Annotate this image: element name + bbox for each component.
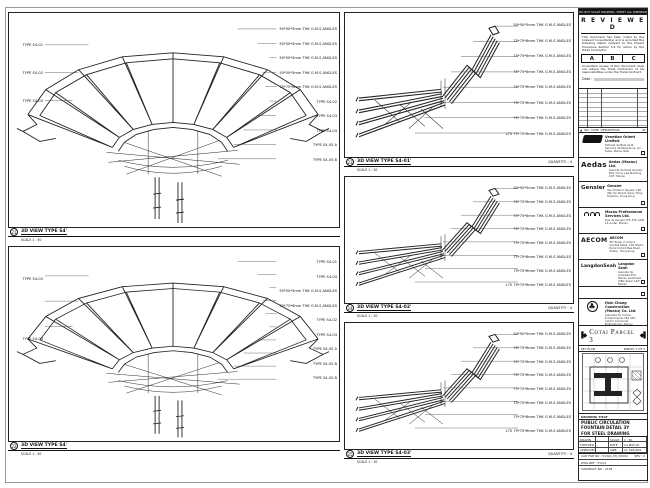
reviewed-paragraph: This document has been noted by the rele… — [581, 34, 645, 54]
company-address: 8/F Tower 2, Grand Central Plaza, 138 Sh… — [609, 241, 645, 253]
revision-triangle-icon: ▲ — [580, 129, 582, 132]
angle-bundle-drawing — [345, 13, 573, 157]
quantity-note: QUANTITY : 4 — [548, 452, 572, 456]
company-address: Two Harbour Square, 180 Wai Yip Street, … — [607, 189, 645, 198]
company-address: Rua de Xangai 175, Edf. ACM 14 Andar, Ma… — [605, 219, 645, 225]
company-name: Macau Professional Services Ltd. — [605, 210, 645, 218]
revision-table: ▲ NO. DATE DESCRIPTION BY — [579, 89, 647, 133]
date-label: Date : — [582, 77, 592, 81]
company-aecom: AECOM AECOM 8/F Tower 2, Grand Central P… — [579, 234, 647, 260]
quantity-note: QUANTITY : 4 — [548, 160, 572, 164]
company-name: Aedas (Macau) Ltd. — [609, 160, 645, 168]
contractor-name: Hsin Chong Construction (Macau) Co. Ltd. — [605, 301, 645, 313]
view-title: 3D VIEW TYPE S4-02' — [357, 305, 411, 311]
title-block: DO NOT SCALE DRAWING. VERIFY ALL DIMENSI… — [578, 8, 648, 481]
status-abc-row: A B C — [581, 54, 645, 63]
stamp-checkbox — [641, 201, 645, 205]
contract-no-row: CONTRACT NO : 2138 — [579, 466, 647, 471]
rev-col-date: DATE — [591, 128, 598, 132]
rev-col-no: NO. — [584, 128, 589, 132]
detail-number-bubble: 24 — [346, 304, 354, 312]
date-fill-line — [594, 78, 644, 81]
company-gensler: Gensler Gensler Two Harbour Square, 180 … — [579, 182, 647, 208]
view-panel-s4-top: 50*50*5mm THK G.M.S ANGLES50*50*5mm THK … — [8, 12, 340, 242]
rev-number: REV : 0 — [635, 454, 645, 458]
project-banner: ▐◆ Cotai Parcel 3 ◆▌ — [579, 326, 647, 346]
reviewed-stamp: R E V I E W E D This document has been n… — [579, 15, 647, 89]
rev-col-desc: DESCRIPTION — [601, 128, 620, 132]
stamp-checkbox — [641, 292, 645, 296]
company-aedas: Aedas Aedas (Macau) Ltd. Avenida da Prai… — [579, 158, 647, 182]
company-address: Estrada da Baia de N. Senhora da Esperan… — [605, 144, 645, 153]
company-address: Avenida da Praia Grande 409, China Law B… — [609, 169, 645, 178]
rev-col-by: BY — [643, 128, 646, 132]
stamp-checkbox — [641, 227, 645, 231]
panel-caption: 21 3D VIEW TYPE S4' — [8, 228, 340, 237]
angle-bundle-drawing — [345, 177, 573, 303]
angle-bundle-drawing — [345, 323, 573, 449]
detail-number-bubble: 21 — [10, 228, 18, 236]
reviewed-paragraph-2: Consultant review of this document does … — [581, 63, 645, 76]
drawing-canvas: 50*50*5mm THK G.M.S ANGLES50*50*5mm THK … — [8, 12, 340, 228]
banner-ornament-left-icon: ▐◆ — [579, 332, 586, 339]
quantity-note: QUANTITY : 4 — [548, 306, 572, 310]
key-plan-thumbnail — [582, 353, 644, 411]
project-name: Cotai Parcel 3 — [589, 328, 637, 344]
view-title: 3D VIEW TYPE S4' — [21, 229, 67, 235]
aecom-logo: AECOM — [581, 236, 607, 244]
company-name: Venetian Orient Limited — [605, 135, 645, 143]
panel-caption: 22 3D VIEW TYPE S4' — [8, 442, 340, 451]
hsin-chong-tree-logo: ♣ — [581, 301, 603, 312]
status-c: C — [623, 55, 644, 63]
drawing-canvas: TYPE S4-01TYPE S4-0450*50*5mm THK G.M.S … — [8, 246, 340, 442]
company-name: Langdon Seah — [618, 262, 645, 270]
radial-structure-drawing — [9, 13, 339, 227]
view-panel-s4-03: 50*50*5mm THK G.M.S ANGLES75*75*6mm THK … — [344, 322, 574, 464]
panel-caption: 24 3D VIEW TYPE S4-02' QUANTITY : 4 — [344, 304, 574, 313]
approved-value: - — [596, 448, 609, 453]
drawing-sheet: 50*50*5mm THK G.M.S ANGLES50*50*5mm THK … — [0, 0, 650, 488]
key-plan: KEY PLAN PARCEL 1 OF 3 — [579, 346, 647, 414]
contract-no: CONTRACT NO : 2138 — [581, 467, 612, 471]
company-langdon-seah: LangdonSeah Langdon Seah Avenida da Amiz… — [579, 260, 647, 287]
banner-ornament-right-icon: ◆▌ — [640, 332, 647, 339]
view-title: 3D VIEW TYPE S4-01' — [357, 159, 411, 165]
venetian-logo — [581, 135, 603, 143]
view-panel-s4-02: 50*50*5mm THK G.M.S ANGLES75*75*6mm THK … — [344, 176, 574, 318]
scale-note: SCALE 1 : 20 — [344, 168, 574, 172]
company-mps: Macau Professional Services Ltd. Rua de … — [579, 208, 647, 234]
drawing-canvas: 50*50*5mm THK G.M.S ANGLES75*75*6mm THK … — [344, 12, 574, 158]
stamp-checkbox — [641, 151, 645, 155]
detail-number-bubble: 25 — [346, 450, 354, 458]
view-title: 3D VIEW TYPE S4-03' — [357, 451, 411, 457]
drawing-canvas: 50*50*5mm THK G.M.S ANGLES75*75*6mm THK … — [344, 322, 574, 450]
size-value: A1 594x841 — [623, 448, 647, 453]
size-label: SIZE — [609, 448, 623, 453]
status-b: B — [603, 55, 624, 63]
scale-note: SCALE 1 : 20 — [344, 314, 574, 318]
detail-number-bubble: 23 — [346, 158, 354, 166]
date-row: Date : — [581, 76, 645, 81]
view-title: 3D VIEW TYPE S4' — [21, 443, 67, 449]
dwg-ref: DWG REF : 3Y/24 — [581, 461, 606, 465]
mps-arches-logo — [581, 210, 603, 218]
radial-structure-drawing — [9, 247, 339, 441]
stamp-checkbox — [641, 253, 645, 257]
approved-label: APPROVED — [579, 448, 596, 453]
scale-note: SCALE 1 : 50 — [8, 452, 340, 456]
panel-caption: 25 3D VIEW TYPE S4-03' QUANTITY : 4 — [344, 450, 574, 459]
drawing-title-line-3: FOR STEEL DRAWING — [579, 431, 647, 436]
drawing-canvas: 50*50*5mm THK G.M.S ANGLES75*75*6mm THK … — [344, 176, 574, 304]
contractor-row: ♣ Hsin Chong Construction (Macau) Co. Lt… — [579, 299, 647, 326]
revision-table-header: ▲ NO. DATE DESCRIPTION BY — [579, 127, 647, 132]
stamp-checkbox — [641, 280, 645, 284]
status-a: A — [582, 55, 603, 63]
blank-stamp-row — [579, 287, 647, 299]
scale-note: SCALE 1 : 50 — [8, 238, 340, 242]
signoff-table: DRAWN - SCALE 1 : 50 CHECKED - DATE 14-M… — [579, 437, 647, 454]
langdon-seah-logo: LangdonSeah — [581, 262, 616, 270]
contractor-address: Alameda Dr. Carlos D'Assumpcao 181-187, … — [605, 314, 645, 326]
company-venetian: Venetian Orient Limited Estrada da Baia … — [579, 133, 647, 158]
panel-caption: 23 3D VIEW TYPE S4-01' QUANTITY : 4 — [344, 158, 574, 167]
cad-file-no: CAD FILE NO : 513A4_PQ_S5004 — [581, 454, 628, 458]
aedas-logo: Aedas — [581, 160, 607, 169]
key-plan-label: KEY PLAN — [581, 347, 595, 351]
gensler-logo: Gensler — [581, 184, 605, 192]
reviewed-title: R E V I E W E D — [581, 16, 645, 34]
view-panel-s4-bottom: TYPE S4-01TYPE S4-0450*50*5mm THK G.M.S … — [8, 246, 340, 456]
scale-note: SCALE 1 : 20 — [344, 460, 574, 464]
drawing-title-section: DRAWING TITLE PUBLIC CIRCULATION FOUNTAI… — [579, 414, 647, 437]
detail-number-bubble: 22 — [10, 442, 18, 450]
key-plan-sheet: PARCEL 1 OF 3 — [624, 347, 645, 351]
view-panel-s4-01: 50*50*5mm THK G.M.S ANGLES75*75*6mm THK … — [344, 12, 574, 172]
